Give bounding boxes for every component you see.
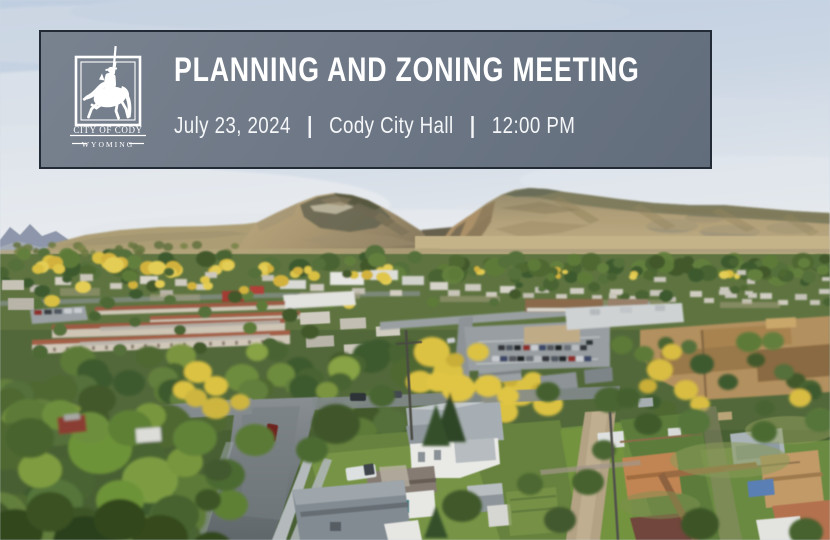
svg-text:WYOMING: WYOMING <box>82 140 134 149</box>
svg-text:CITY OF CODY: CITY OF CODY <box>73 125 142 135</box>
